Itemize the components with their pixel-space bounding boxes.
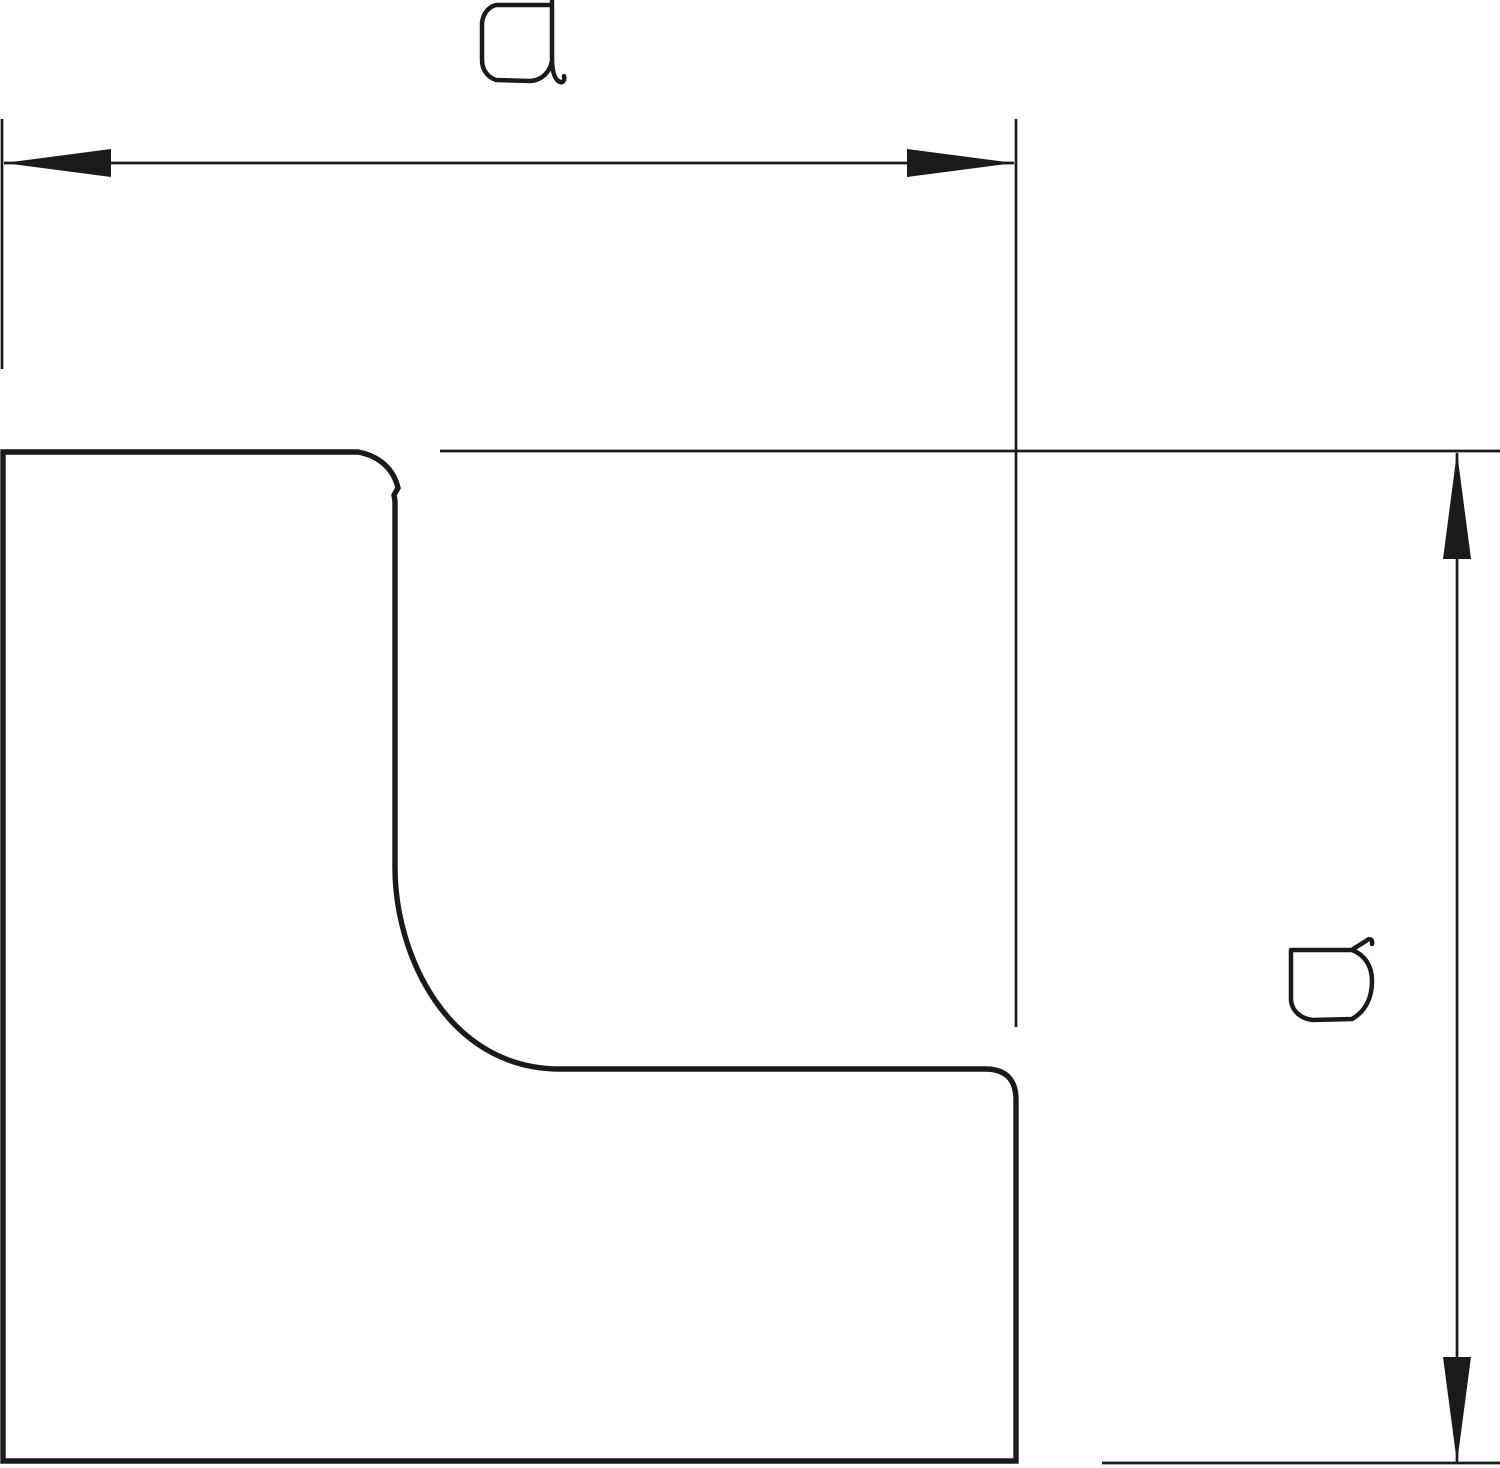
arrowhead-up-icon: [1443, 452, 1471, 559]
arrowhead-left-icon: [4, 149, 111, 177]
arrowhead-right-icon: [907, 149, 1014, 177]
arrowhead-down-icon: [1443, 1357, 1471, 1463]
dimension-b: b: [440, 451, 1500, 1463]
dimension-b-label-group: b: [1288, 927, 1372, 1044]
part: [3, 452, 1016, 1461]
dimension-a-label-group: a: [480, 0, 564, 112]
dimension-a: a: [2, 0, 1016, 1027]
drawing-canvas: a b: [0, 0, 1500, 1468]
technical-drawing: a b: [0, 0, 1500, 1468]
part-outline: [3, 452, 1016, 1461]
